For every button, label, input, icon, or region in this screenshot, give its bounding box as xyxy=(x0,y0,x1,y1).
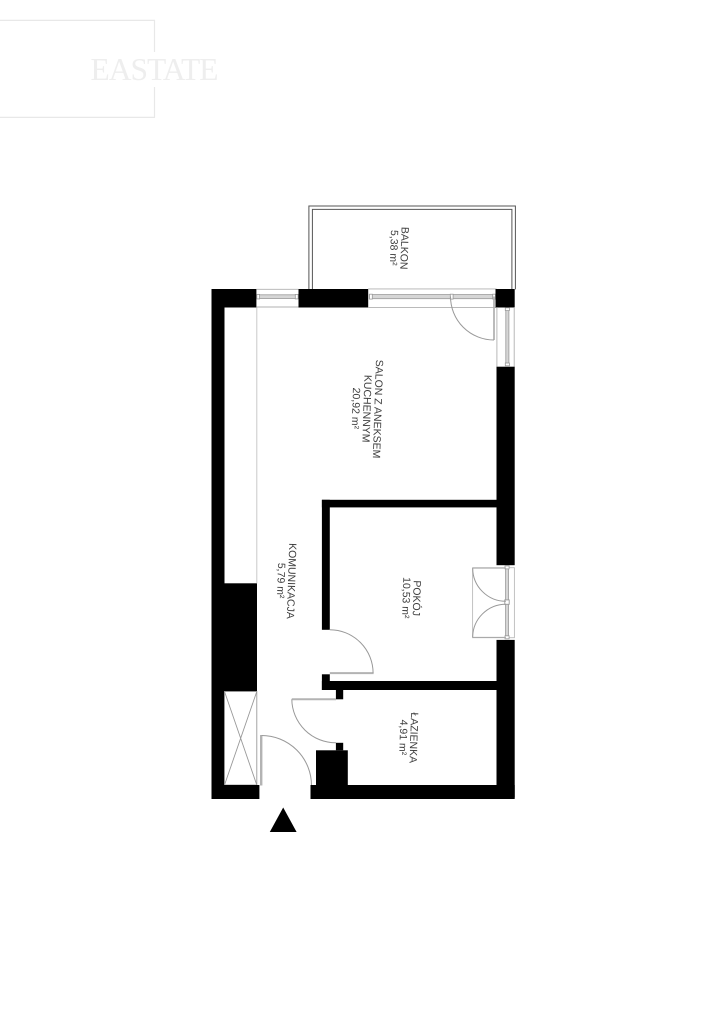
svg-text:EASTATE: EASTATE xyxy=(91,52,218,87)
svg-text:4,91 m²: 4,91 m² xyxy=(396,719,409,755)
svg-text:5,38 m²: 5,38 m² xyxy=(387,230,400,266)
svg-text:20,92 m²: 20,92 m² xyxy=(349,387,362,429)
svg-text:10,53 m²: 10,53 m² xyxy=(399,577,412,619)
svg-text:5,79 m²: 5,79 m² xyxy=(274,563,287,599)
